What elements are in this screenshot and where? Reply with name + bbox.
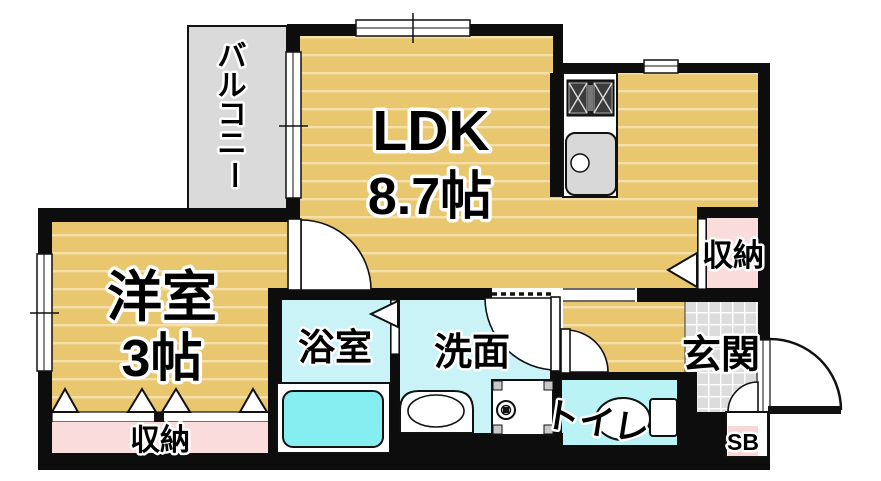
wall [697, 207, 760, 218]
ldk-label: LDK [372, 99, 489, 163]
closet-track-stop [154, 412, 164, 422]
wall [38, 208, 52, 255]
storage-bottom-label: 収納 [130, 424, 190, 457]
bathtub-icon [277, 383, 390, 453]
entrance-label: 玄関 [682, 334, 760, 377]
wall [550, 445, 697, 455]
wall [553, 24, 563, 73]
hallway-opening [553, 288, 637, 302]
wall [38, 208, 300, 222]
balcony-label-char: ル [217, 70, 246, 102]
ldk-floor-below-counter [553, 197, 617, 288]
western-room-label: 洋室 [107, 266, 217, 328]
washroom-label: 洗面 [434, 332, 510, 374]
bathroom-label: 浴室 [298, 326, 372, 368]
kitchen-floor [617, 73, 758, 207]
wall [38, 370, 52, 470]
wall [697, 412, 728, 470]
wall [287, 24, 300, 53]
shoe-box-label: SB [727, 429, 759, 455]
balcony-label-char: コ [217, 99, 246, 131]
kitchen-sink-icon [566, 133, 616, 195]
stove-icon [567, 80, 614, 116]
wall [677, 372, 697, 455]
balcony-label-char: ニ [217, 128, 246, 160]
washbasin-icon [400, 391, 473, 433]
wall [470, 24, 563, 36]
ldk-size-label: 8.7帖 [368, 168, 492, 226]
balcony-label: バ ル コ ニ ー [217, 41, 249, 190]
wall [635, 288, 760, 302]
storage-top-label: 収納 [702, 238, 764, 273]
wall [390, 433, 563, 455]
floor-plan: LDK 8.7帖 洋室 3帖 浴室 洗面 トイレ 玄関 収納 収納 SB バ ル… [0, 0, 881, 481]
balcony-label-char: バ [217, 41, 246, 73]
floor-plan-canvas: LDK 8.7帖 洋室 3帖 浴室 洗面 トイレ 玄関 収納 収納 SB バ ル… [0, 0, 881, 481]
wall [678, 63, 770, 73]
wall [563, 63, 644, 73]
wall [550, 73, 563, 197]
wall [562, 372, 690, 380]
window-kitchen [644, 60, 678, 73]
western-room-size-label: 3帖 [122, 330, 203, 388]
balcony-label-char: ー [217, 160, 249, 189]
